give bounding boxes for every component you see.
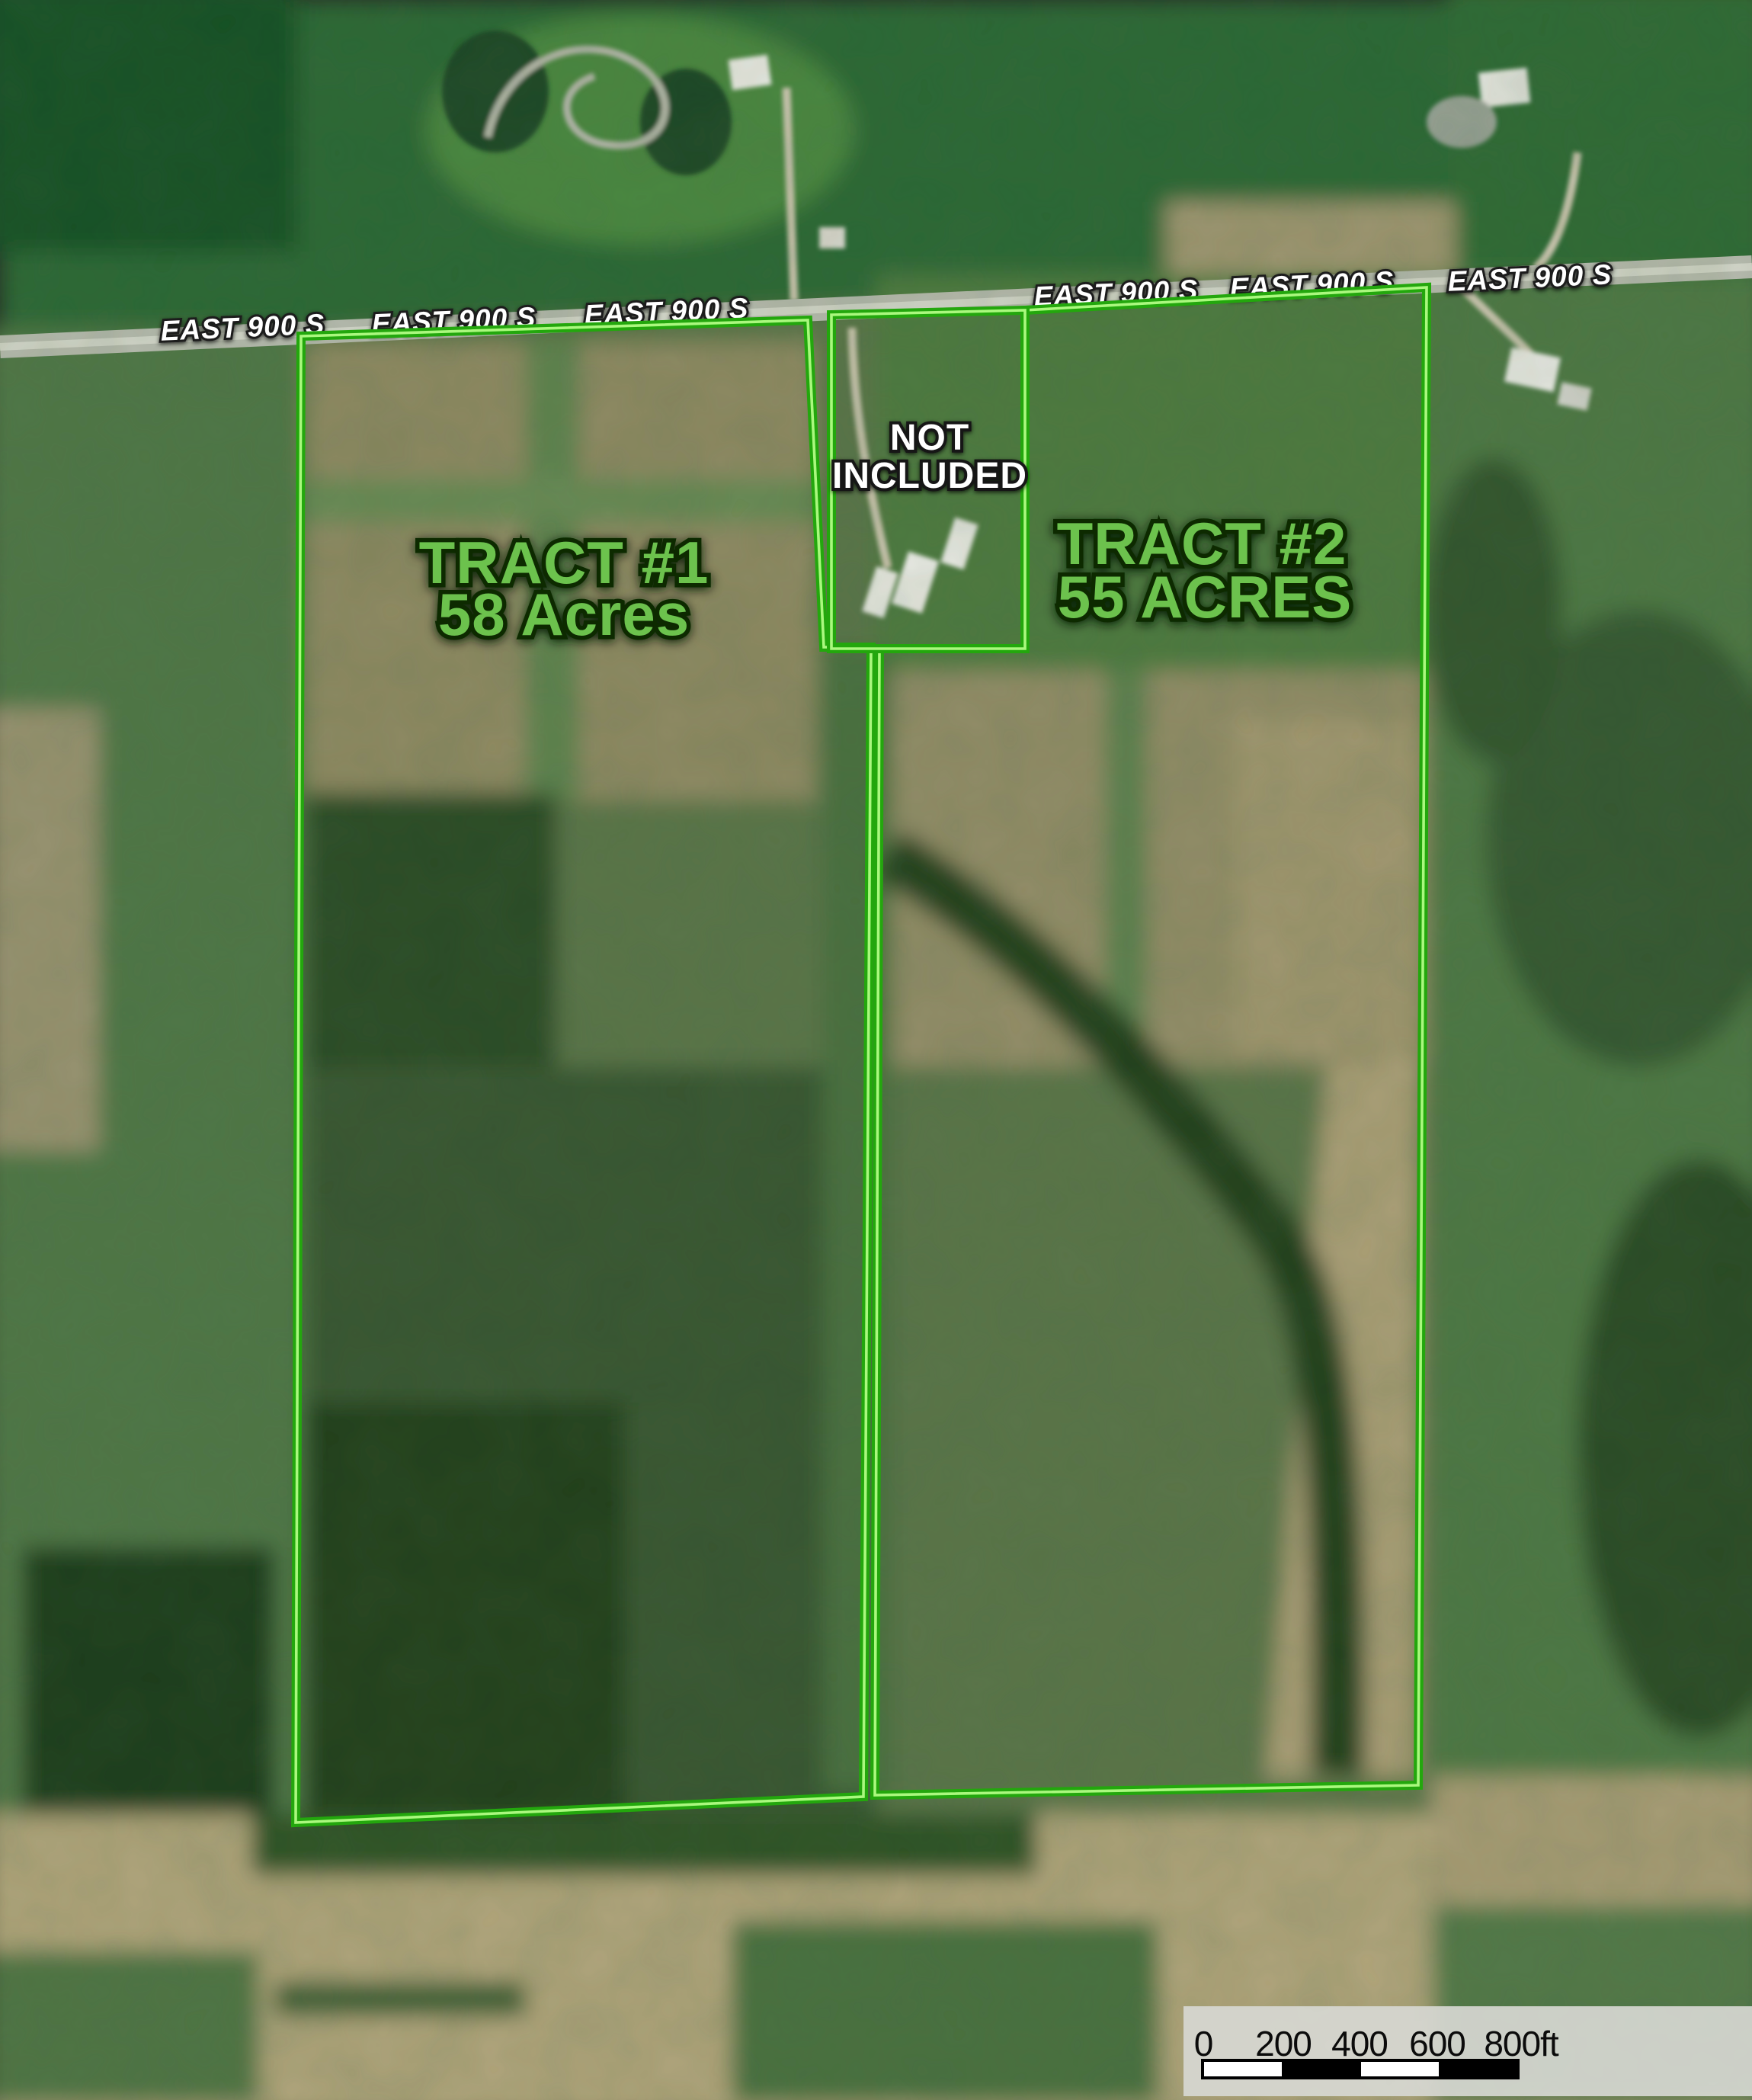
map-canvas: EAST 900 S EAST 900 S EAST 900 S EAST 90… [0, 0, 1752, 2100]
scale-bar: 0 200 400 600 800ft [1183, 2006, 1752, 2096]
scale-segment-white-1 [1204, 2062, 1282, 2076]
not-included-line2: INCLUDED [832, 456, 1027, 496]
scale-tick-800ft: 800ft [1484, 2024, 1559, 2063]
scale-segments [1201, 2059, 1520, 2079]
not-included-line1: NOT [890, 418, 969, 458]
scale-tick-0: 0 [1194, 2024, 1213, 2063]
aerial-tract-map: EAST 900 S EAST 900 S EAST 900 S EAST 90… [0, 0, 1752, 2100]
tract2-acreage: 55 ACRES [1058, 563, 1353, 630]
tract2-label: TRACT #2 55 ACRES [1057, 510, 1353, 630]
scale-tick-200: 200 [1255, 2024, 1312, 2063]
tract1-label: TRACT #1 58 Acres [419, 529, 709, 648]
scale-tick-600: 600 [1409, 2024, 1465, 2063]
scale-tick-400: 400 [1331, 2024, 1388, 2063]
tract1-acreage: 58 Acres [438, 581, 690, 648]
scale-segment-white-2 [1361, 2062, 1439, 2076]
